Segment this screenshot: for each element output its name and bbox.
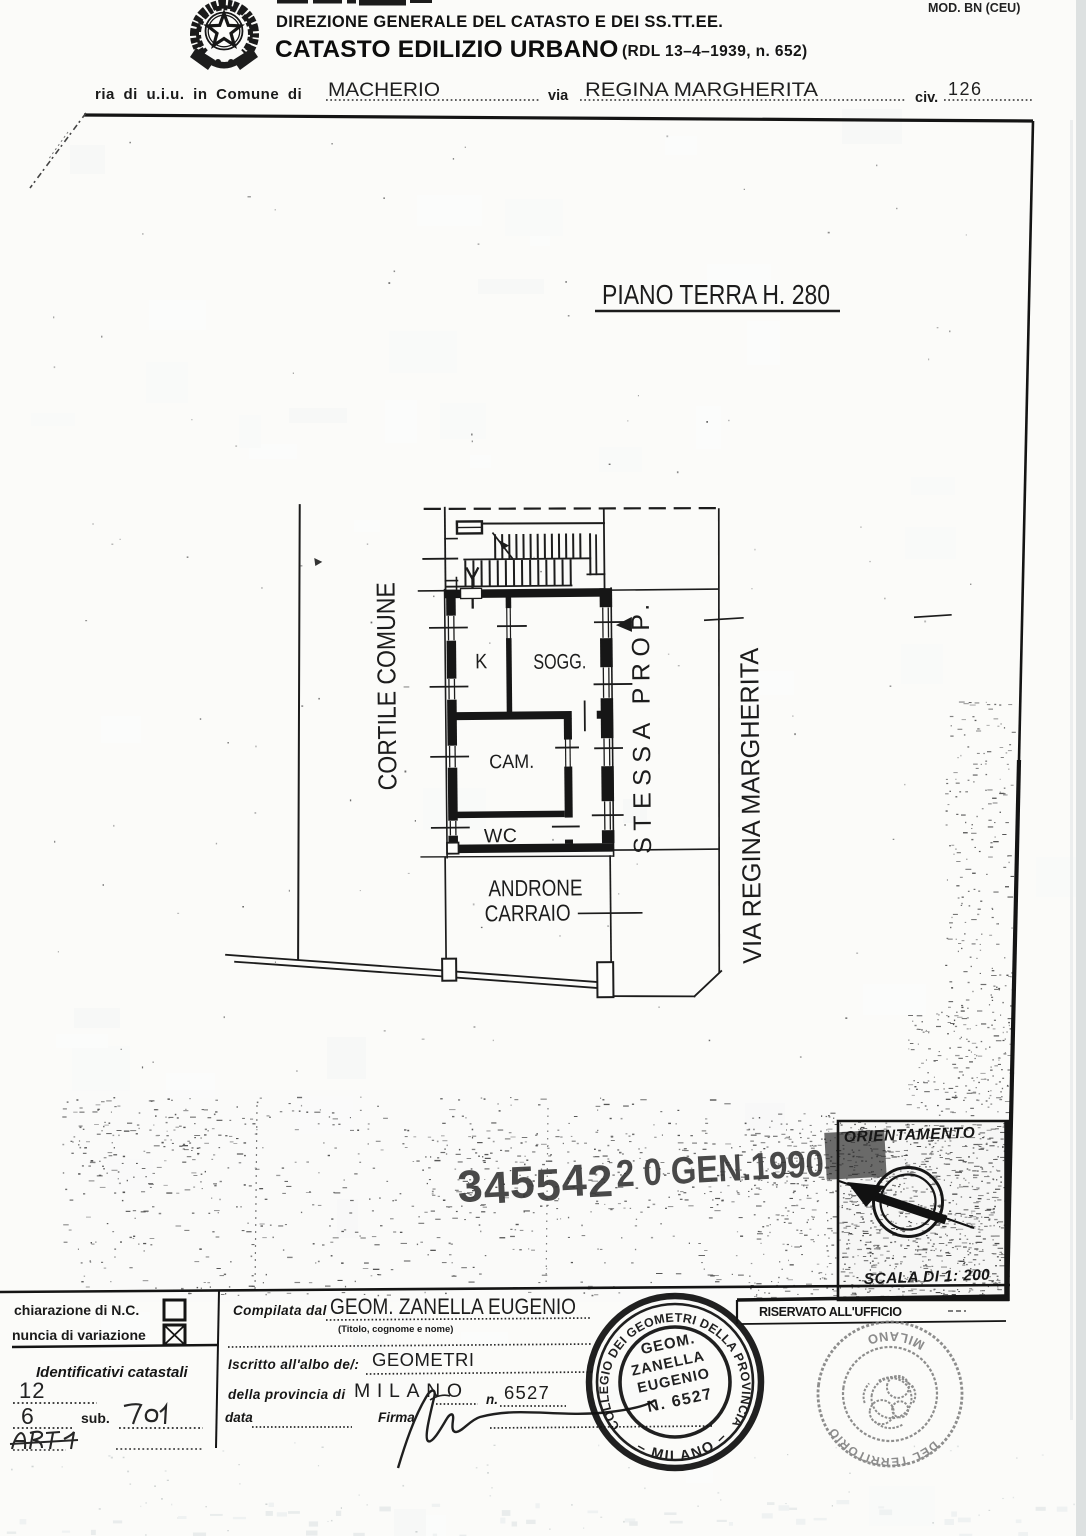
svg-text:DIREZIONE GENERALE DEL CATASTO: DIREZIONE GENERALE DEL CATASTO E DEI SS.… (276, 13, 723, 31)
svg-text:MACHERIO: MACHERIO (328, 80, 440, 101)
svg-text:data: data (225, 1410, 253, 1425)
svg-text:chiarazione di N.C.: chiarazione di N.C. (14, 1302, 139, 1318)
svg-text:.: . (590, 312, 591, 314)
svg-text:Firma: Firma (378, 1410, 415, 1425)
svg-text:RISERVATO ALL'UFFICIO: RISERVATO ALL'UFFICIO (759, 1305, 902, 1319)
svg-text:STESSA PROP.: STESSA PROP. (627, 604, 657, 854)
svg-text:civ.: civ. (915, 90, 938, 106)
svg-text:CORTILE COMUNE: CORTILE COMUNE (370, 582, 402, 790)
svg-text:Compilata dal: Compilata dal (233, 1303, 327, 1318)
svg-text:SOGG.: SOGG. (533, 650, 586, 674)
svg-text:nuncia di variazione: nuncia di variazione (12, 1327, 146, 1343)
svg-text:ria di u.i.u. in Comune di: ria di u.i.u. in Comune di (95, 86, 302, 103)
svg-text:n.: n. (486, 1392, 498, 1407)
svg-text:della provincia di: della provincia di (228, 1387, 345, 1402)
svg-text:K: K (475, 650, 487, 673)
svg-text:MOD. BN (CEU): MOD. BN (CEU) (928, 1, 1020, 15)
svg-text:ANDRONE: ANDRONE (488, 874, 582, 901)
svg-text:(RDL 13–4–1939, n. 652): (RDL 13–4–1939, n. 652) (622, 43, 808, 60)
svg-text:GEOMETRI: GEOMETRI (372, 1349, 474, 1370)
svg-text:GEOM. ZANELLA EUGENIO: GEOM. ZANELLA EUGENIO (330, 1294, 576, 1319)
svg-text:REGINA MARGHERITA: REGINA MARGHERITA (585, 80, 818, 101)
svg-text:(Titolo, cognome e nome): (Titolo, cognome e nome) (338, 1324, 453, 1335)
svg-text:345542: 345542 (456, 1152, 615, 1215)
svg-text:WC: WC (484, 825, 517, 847)
svg-text:Iscritto all'albo de/:: Iscritto all'albo de/: (228, 1357, 359, 1372)
svg-text:6527: 6527 (504, 1382, 550, 1403)
svg-text:126: 126 (948, 79, 983, 99)
svg-text:PIANO TERRA H. 280: PIANO TERRA H. 280 (602, 279, 830, 310)
svg-text:12: 12 (19, 1378, 45, 1403)
svg-text:CATASTO EDILIZIO URBANO: CATASTO EDILIZIO URBANO (275, 36, 619, 63)
svg-text:CARRAIO: CARRAIO (485, 900, 571, 927)
svg-text:VIA REGINA MARGHERITA: VIA REGINA MARGHERITA (734, 647, 767, 964)
svg-text:Identificativi catastali: Identificativi catastali (36, 1364, 189, 1381)
svg-text:sub.: sub. (81, 1410, 110, 1426)
svg-text:DEL TERRITORIO: DEL TERRITORIO (822, 1423, 942, 1475)
svg-text:via: via (548, 88, 569, 104)
svg-text:6: 6 (21, 1403, 34, 1429)
svg-text:CAM.: CAM. (489, 751, 534, 773)
svg-text:MILANO: MILANO (354, 1380, 462, 1402)
